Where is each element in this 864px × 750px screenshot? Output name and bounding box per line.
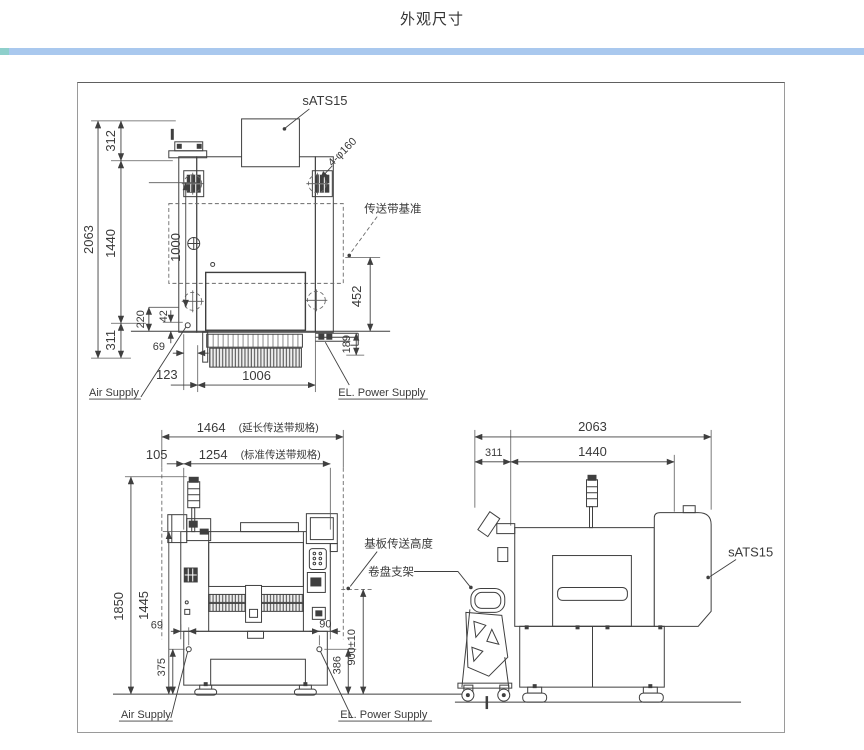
air-supply-point-top [185,323,190,328]
monitor-arm-side [478,512,515,562]
dim-width-extended: 1464 [197,420,226,435]
dim-height-total: 1850 [111,592,126,621]
monitor-arm-front [168,515,211,543]
top-view: 2063 312 1440 311 1000 220 42 69 123 100… [81,93,428,399]
conveyor-table [206,272,306,330]
center-bracket [246,585,262,622]
dim-width-standard: 1254 [199,447,228,462]
side-view: 2063 311 1440 [455,419,773,709]
front-door-side [553,556,632,627]
signal-tower-side [587,475,598,528]
reel-cart [458,588,512,709]
label-power-supply-top: EL. Power Supply [338,387,426,399]
dim-123: 123 [156,367,178,382]
dim-power-height: 386 [331,656,343,674]
dim-depth-total: 2063 [578,419,607,434]
dim-rear-section: 312 [103,130,118,152]
label-air-supply-front: Air Supply [121,709,171,721]
page-title: 外观尺寸 [0,8,864,29]
dim-side-margin: 105 [146,447,168,462]
divider-bar [0,48,864,55]
sats15-unit-box [242,119,300,167]
label-sats15-top: sATS15 [302,93,347,108]
door-handle [558,587,628,600]
machine-body-top [197,157,316,332]
dim-42: 42 [158,310,170,322]
foot [294,682,316,695]
dim-frame-depth: 1440 [103,229,118,258]
sats15-section-side [654,513,711,627]
button-panel [309,549,326,570]
machine-body-side [515,528,655,627]
front-panel [209,543,304,587]
label-pcb-transfer: 基板传送高度 [364,537,433,551]
dim-bracket-drop: 189 [341,335,353,353]
label-holes: 4-φ160 [326,136,359,169]
feeder-bank-top [203,332,303,367]
dim-front-width: 1006 [242,368,271,383]
label-sats15-side: sATS15 [728,545,773,560]
dim-69: 69 [153,341,165,353]
label-power-supply-front: EL. Power Supply [340,709,428,721]
dim-air-offset: 69 [151,619,163,631]
dim-rear-margin: 311 [485,447,502,459]
air-supply-point-front [186,647,191,652]
front-view: 1464 (延长传送带规格) 1254 (标准传送带规格) 105 1850 1… [111,420,473,721]
divider-tip [0,48,9,55]
dim-220: 220 [135,310,147,328]
dimension-drawing: 2063 312 1440 311 1000 220 42 69 123 100… [78,83,784,732]
dim-width-extended-note: (延长传送带规格) [239,421,319,434]
vent-grid [184,568,198,583]
dim-rail-span: 1000 [168,233,183,262]
dim-conveyor-offset: 452 [349,286,364,308]
foot [195,682,217,695]
power-supply-point-front [317,647,322,652]
diagram-frame: 2063 312 1440 311 1000 220 42 69 123 100… [77,82,785,733]
dim-power-offset: 90 [319,618,331,630]
dim-total-depth: 2063 [81,225,96,254]
label-reel-rack: 卷盘支架 [368,564,414,578]
label-conveyor-ref: 传送带基准 [364,202,421,216]
dim-transfer-height: 900±10 [346,629,358,665]
label-air-supply-top: Air Supply [89,387,139,399]
dim-width-standard-note: (标准传送带规格) [241,448,321,461]
dim-air-height: 375 [156,658,168,676]
dim-height-frame: 1445 [136,591,151,620]
dim-frame-depth-side: 1440 [578,444,607,459]
dim-front-section: 311 [103,330,118,351]
